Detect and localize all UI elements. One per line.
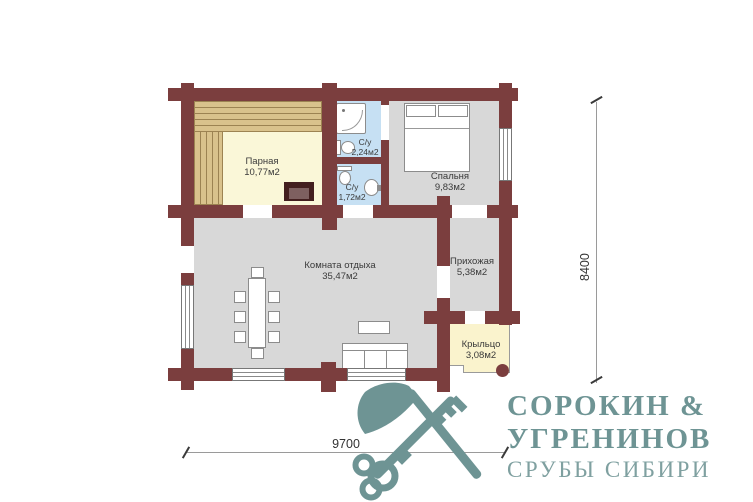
door-su-bottom [343,205,373,218]
room-label-hallway: Прихожая 5,38м2 [432,256,512,279]
room-name: С/у [342,137,388,147]
shower [336,103,366,134]
chair-top [251,267,264,278]
room-area: 10,77м2 [222,167,302,178]
chair-left-1 [234,291,246,303]
room-name: С/у [329,182,375,192]
room-name: Парная [222,156,302,167]
door-parnaya [243,205,272,218]
floor-plan-canvas: Парная 10,77м2 С/у 2,24м2 С/у 1,72м2 Спа… [0,0,753,502]
room-name: Крыльцо [441,339,521,350]
dimension-right-label: 8400 [578,226,592,281]
wall-bath-divider [335,157,382,164]
window-bedroom [499,128,512,181]
opening-left-wall [181,246,194,273]
chair-right-3 [268,331,280,343]
wall-right [499,83,512,325]
porch-step [450,365,464,373]
room-name: Комната отдыха [280,260,400,271]
coffee-table [358,321,390,334]
logo-line-1: СОРОКИН & [507,390,706,423]
room-label-parnaya: Парная 10,77м2 [222,156,302,179]
room-label-lounge: Комната отдыха 35,47м2 [280,260,400,283]
chair-right-2 [268,311,280,323]
room-area: 35,47м2 [280,271,400,282]
stove [284,182,314,201]
chair-left-3 [234,331,246,343]
room-area: 1,72м2 [329,192,375,202]
room-name: Прихожая [432,256,512,267]
room-area: 3,08м2 [441,350,521,361]
room-name: Спальня [410,171,490,182]
sofa [342,343,408,369]
room-label-su-top: С/у 2,24м2 [342,137,388,157]
door-porch [465,311,485,324]
dining-table [248,278,266,348]
pillow-right [438,105,468,117]
stove-firebox [289,188,309,199]
room-label-su-bottom: С/у 1,72м2 [329,182,375,202]
logo-line-3: СРУБЫ СИБИРИ [507,457,711,483]
log-end-bottom-center [321,362,336,392]
sauna-bench-left [194,131,223,205]
dimension-right-line [596,102,597,383]
room-label-porch: Крыльцо 3,08м2 [441,339,521,362]
chair-bottom [251,348,264,359]
logo-line-2: УГРЕНИНОВ [507,423,711,456]
window-bottom-left [232,368,285,381]
door-bedroom [452,205,487,218]
room-area: 2,24м2 [342,147,388,157]
wall-top [175,88,518,101]
room-area: 5,38м2 [432,267,512,278]
log-end-top-left [168,88,181,101]
pillow-left [406,105,436,117]
log-end-bottom-left [168,368,181,381]
room-area: 9,83м2 [410,182,490,193]
door-su-top [381,105,389,140]
sauna-bench-top [194,101,322,132]
axe-and-key-icon [345,376,505,502]
room-label-bedroom: Спальня 9,83м2 [410,171,490,194]
chair-right-1 [268,291,280,303]
chair-left-2 [234,311,246,323]
window-left [181,285,194,349]
